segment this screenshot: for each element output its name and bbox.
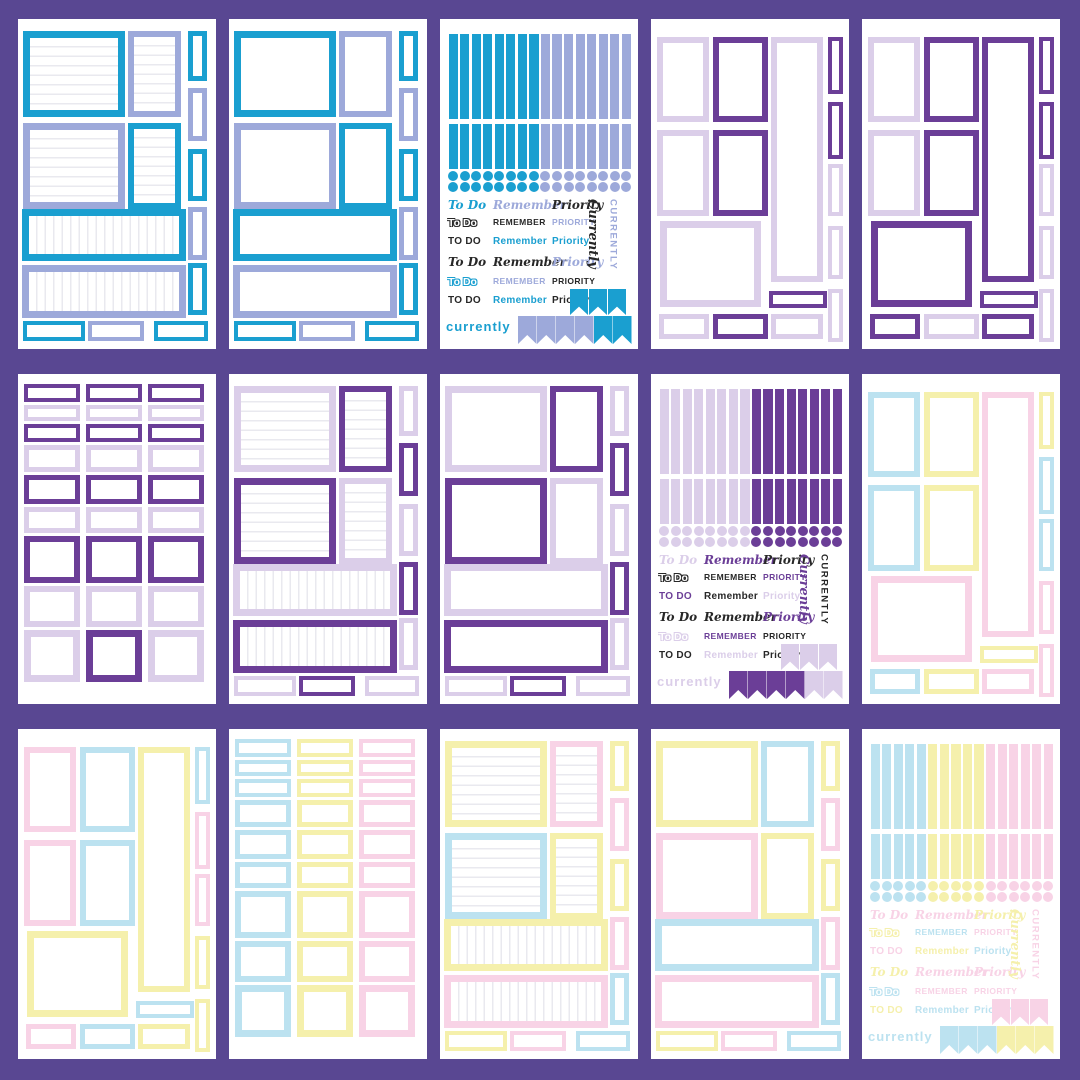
word-sticker-remember: Remember [915, 987, 968, 996]
box-sticker [297, 862, 353, 888]
box-sticker-inner [239, 743, 287, 753]
box-sticker-inner [615, 803, 624, 846]
washi-strip-sticker [963, 744, 972, 829]
box-sticker [445, 833, 547, 919]
box-sticker [610, 741, 629, 791]
dot-sticker [763, 526, 773, 536]
box-sticker [86, 384, 142, 402]
dot-sticker [682, 526, 692, 536]
box-sticker [22, 265, 186, 318]
washi-strip-sticker [472, 34, 481, 119]
box-sticker [359, 941, 415, 982]
box-sticker [655, 975, 819, 1028]
box-sticker-inner [725, 1035, 773, 1047]
box-sticker [188, 31, 207, 81]
box-sticker-inner [303, 947, 347, 976]
box-sticker-inner [242, 992, 284, 1030]
box-sticker [828, 289, 843, 342]
box-sticker [235, 891, 291, 938]
washi-strip-sticker [1044, 744, 1053, 829]
box-sticker-inner [776, 319, 818, 334]
dot-sticker [1032, 892, 1042, 902]
sticker-sheet-collage: To DoRememberPriorityTo DoRememberPriori… [0, 0, 1080, 1080]
dot-sticker [517, 182, 527, 192]
dot-sticker [552, 171, 562, 181]
box-sticker [148, 445, 204, 472]
box-sticker-inner [199, 816, 206, 865]
dot-sticker [494, 182, 504, 192]
washi-strip-sticker [587, 124, 596, 169]
box-sticker-inner [30, 592, 74, 621]
box-sticker [610, 504, 629, 556]
box-sticker [787, 1031, 841, 1051]
box-sticker [444, 919, 608, 971]
dot-sticker [751, 537, 761, 547]
pennant-sticker [1030, 999, 1048, 1025]
washi-strip-sticker [798, 479, 807, 524]
box-sticker [234, 321, 296, 341]
sticker-sheet-13 [440, 729, 638, 1059]
pennant-sticker [1011, 999, 1029, 1025]
word-sticker-to-do: TO DO [870, 1006, 903, 1016]
dot-sticker [939, 892, 949, 902]
box-sticker-inner [719, 136, 762, 210]
box-sticker [80, 747, 135, 832]
dot-sticker [893, 892, 903, 902]
box-sticker [1039, 37, 1054, 94]
box-sticker-inner [369, 325, 415, 337]
box-sticker-inner [404, 509, 413, 551]
dot-sticker [552, 182, 562, 192]
box-sticker-inner [987, 319, 1029, 334]
dot-sticker [740, 526, 750, 536]
washi-strip-sticker [599, 124, 608, 169]
word-sticker-remember: Remember [704, 651, 758, 661]
box-sticker [148, 424, 204, 442]
box-sticker-inner [878, 228, 965, 300]
box-sticker-inner [241, 947, 285, 976]
washi-strip-sticker [1032, 744, 1041, 829]
dot-sticker [540, 171, 550, 181]
box-sticker [1039, 102, 1054, 159]
dot-sticker [1009, 892, 1019, 902]
box-sticker [510, 1031, 566, 1051]
box-sticker [297, 739, 353, 757]
dot-sticker [882, 881, 892, 891]
dot-sticker [809, 526, 819, 536]
washi-strip-sticker [717, 479, 726, 524]
box-sticker-inner [85, 1029, 130, 1044]
washi-strip-sticker [694, 479, 703, 524]
dot-sticker [821, 537, 831, 547]
dot-sticker [471, 182, 481, 192]
washi-strip-sticker [495, 124, 504, 169]
box-sticker [550, 741, 603, 827]
box-sticker [23, 123, 125, 209]
box-sticker [721, 1031, 777, 1051]
box-sticker [23, 321, 85, 341]
washi-strip-sticker [882, 834, 891, 879]
box-sticker-inner [615, 509, 624, 551]
box-sticker-inner [987, 674, 1029, 689]
dot-sticker [916, 892, 926, 902]
box-sticker [26, 1024, 76, 1049]
box-sticker-inner [773, 295, 823, 304]
dot-sticker [728, 526, 738, 536]
word-sticker-currently-vertical: CURRENTLY [819, 554, 829, 654]
box-sticker [871, 221, 972, 307]
box-sticker [1039, 392, 1054, 449]
box-sticker-inner [514, 1035, 562, 1047]
box-sticker [399, 618, 418, 670]
washi-strip-sticker [871, 834, 880, 879]
box-sticker [982, 37, 1034, 282]
word-sticker-currently-vertical: CURRENTLY [608, 199, 618, 299]
box-sticker [297, 941, 353, 982]
box-sticker [234, 386, 336, 472]
box-sticker-inner [134, 37, 175, 111]
dot-sticker [1043, 881, 1053, 891]
dot-sticker [763, 537, 773, 547]
washi-strip-sticker [483, 124, 492, 169]
washi-strip-sticker [683, 479, 692, 524]
dot-sticker [916, 881, 926, 891]
box-sticker [148, 475, 204, 504]
pennant-sticker [824, 671, 843, 699]
washi-strip-sticker [1009, 744, 1018, 829]
box-sticker-inner [153, 450, 199, 467]
box-sticker-inner [832, 106, 839, 155]
box-sticker [656, 1031, 718, 1051]
washi-strip-sticker [683, 389, 692, 474]
box-sticker [235, 941, 291, 982]
word-sticker-currently: currently [868, 1030, 933, 1043]
sticker-sheet-7 [229, 374, 427, 704]
sticker-sheet-2 [229, 19, 427, 349]
box-sticker-inner [29, 450, 75, 467]
box-sticker-inner [301, 764, 349, 772]
box-sticker-inner [826, 978, 835, 1020]
box-sticker [188, 88, 207, 141]
pennant-sticker [978, 1026, 997, 1054]
box-sticker-inner [238, 325, 292, 337]
box-sticker [128, 123, 181, 209]
box-sticker-inner [90, 409, 138, 417]
pennant-sticker [767, 671, 786, 699]
box-sticker [136, 1001, 194, 1018]
dot-sticker [1009, 881, 1019, 891]
box-sticker-inner [153, 512, 199, 528]
box-sticker [924, 130, 979, 216]
box-sticker [359, 760, 415, 776]
dot-sticker [974, 881, 984, 891]
box-sticker [713, 130, 768, 216]
box-sticker-inner [303, 897, 347, 932]
dot-sticker [587, 171, 597, 181]
washi-strip-sticker [706, 479, 715, 524]
box-sticker [659, 314, 709, 339]
box-sticker-inner [366, 992, 408, 1030]
box-sticker-inner [404, 154, 413, 196]
pennant-sticker [748, 671, 767, 699]
box-sticker-inner [615, 391, 624, 431]
box-sticker [660, 221, 761, 307]
pennant-sticker [729, 671, 748, 699]
box-sticker [445, 741, 547, 827]
box-sticker [24, 586, 80, 627]
word-sticker-to-do: To Do [870, 987, 899, 998]
box-sticker [828, 226, 843, 279]
washi-strip-sticker [660, 479, 669, 524]
box-sticker [771, 37, 823, 282]
washi-strip-sticker [940, 744, 949, 829]
box-sticker [235, 760, 291, 776]
dot-sticker [506, 182, 516, 192]
box-sticker [138, 747, 190, 992]
word-sticker-remember: Remember [493, 218, 546, 227]
box-sticker-inner [718, 319, 763, 334]
dot-sticker [610, 182, 620, 192]
dot-sticker [1032, 881, 1042, 891]
washi-strip-sticker [998, 834, 1007, 879]
dot-sticker [448, 182, 458, 192]
dot-sticker [882, 892, 892, 902]
box-sticker-inner [1043, 523, 1050, 567]
dot-sticker [598, 171, 608, 181]
box-sticker [924, 392, 979, 477]
word-sticker-currently-vertical: CURRENTLY [1030, 909, 1040, 1009]
box-sticker-inner [615, 864, 624, 906]
washi-strip-sticker [729, 479, 738, 524]
box-sticker [86, 424, 142, 442]
washi-strip-sticker [986, 744, 995, 829]
box-sticker-inner [452, 485, 540, 557]
box-sticker [24, 507, 80, 533]
box-sticker-inner [158, 325, 204, 337]
box-sticker-inner [874, 398, 914, 471]
sticker-sheet-10 [862, 374, 1060, 704]
box-sticker-inner [93, 637, 135, 675]
box-sticker [86, 630, 142, 682]
box-sticker [359, 800, 415, 827]
washi-strip-sticker [541, 124, 550, 169]
box-sticker [445, 386, 547, 472]
word-sticker-remember: Remember [915, 947, 969, 957]
box-sticker [235, 862, 291, 888]
box-sticker [713, 37, 768, 122]
pennant-sticker [805, 671, 824, 699]
box-sticker-inner [1043, 168, 1050, 212]
box-sticker [235, 739, 291, 757]
box-sticker-inner [143, 1029, 185, 1044]
dot-sticker [694, 537, 704, 547]
box-sticker [870, 314, 920, 339]
box-sticker-inner [449, 1035, 503, 1047]
word-sticker-to-do: To Do [659, 611, 697, 623]
box-sticker [23, 31, 125, 117]
box-sticker-inner [404, 268, 413, 310]
box-sticker-inner [30, 130, 118, 202]
box-sticker-inner [451, 926, 601, 964]
box-sticker [980, 646, 1038, 663]
washi-strip-sticker [449, 124, 458, 169]
box-sticker [86, 536, 142, 583]
box-sticker [299, 321, 355, 341]
word-sticker-priority: Priority [974, 947, 1011, 957]
box-sticker [80, 840, 135, 926]
washi-strip-sticker [1044, 834, 1053, 879]
dot-sticker [671, 526, 681, 536]
box-sticker-inner [984, 295, 1034, 304]
dot-sticker [928, 892, 938, 902]
box-sticker [148, 507, 204, 533]
box-sticker-inner [663, 840, 751, 912]
word-sticker-to-do: TO DO [659, 651, 692, 661]
box-sticker [821, 798, 840, 851]
box-sticker [148, 405, 204, 421]
box-sticker-inner [1043, 461, 1050, 510]
washi-strip-sticker [974, 744, 983, 829]
box-sticker-inner [193, 268, 202, 310]
pennant-sticker [556, 316, 575, 344]
pennant-sticker [992, 999, 1010, 1025]
box-sticker-inner [556, 392, 597, 466]
pennant-sticker [819, 644, 837, 670]
dot-sticker [471, 171, 481, 181]
box-sticker-inner [449, 680, 503, 692]
dot-sticker [832, 537, 842, 547]
box-sticker-inner [27, 325, 81, 337]
word-sticker-to-do: To Do [448, 199, 486, 211]
box-sticker [365, 676, 419, 696]
washi-strip-sticker [974, 834, 983, 879]
box-sticker-inner [240, 571, 390, 609]
box-sticker [24, 630, 80, 682]
box-sticker [868, 37, 920, 122]
box-sticker-inner [929, 319, 974, 334]
dot-sticker [621, 171, 631, 181]
box-sticker [148, 384, 204, 402]
washi-strip-sticker [518, 124, 527, 169]
dot-sticker [529, 171, 539, 181]
box-sticker-inner [91, 480, 137, 499]
washi-strip-sticker [833, 389, 842, 474]
box-sticker [761, 833, 814, 919]
dot-sticker [962, 892, 972, 902]
box-sticker [359, 779, 415, 797]
washi-strip-sticker [821, 389, 830, 474]
word-sticker-remember: Remember [493, 277, 546, 286]
pennant-sticker [959, 1026, 978, 1054]
washi-strip-sticker [506, 124, 515, 169]
box-sticker-inner [363, 764, 411, 772]
box-sticker [610, 618, 629, 670]
box-sticker [297, 800, 353, 827]
box-sticker [359, 862, 415, 888]
box-sticker-inner [556, 839, 597, 913]
word-sticker-to-do: TO DO [448, 237, 481, 247]
pennant-sticker [1035, 1026, 1054, 1054]
dot-sticker [905, 881, 915, 891]
box-sticker-inner [364, 835, 410, 854]
box-sticker [828, 102, 843, 159]
box-sticker [195, 999, 210, 1052]
box-sticker [713, 314, 768, 339]
washi-strip-sticker [763, 389, 772, 474]
box-sticker-inner [241, 393, 329, 465]
word-sticker-to-do: TO DO [448, 296, 481, 306]
box-sticker-inner [667, 228, 754, 300]
box-sticker-inner [930, 491, 973, 565]
box-sticker-inner [153, 480, 199, 499]
box-sticker-inner [404, 623, 413, 665]
box-sticker [924, 314, 979, 339]
sticker-sheet-15: To DoRememberPriorityTo DoRememberPriori… [862, 729, 1060, 1059]
sticker-sheet-12 [229, 729, 427, 1059]
washi-strip-sticker [894, 744, 903, 829]
dot-sticker [460, 182, 470, 192]
washi-strip-sticker [552, 34, 561, 119]
pennant-sticker [613, 316, 632, 344]
box-sticker [1039, 581, 1054, 634]
washi-strip-sticker [622, 124, 631, 169]
box-sticker [24, 747, 76, 832]
dot-sticker [1020, 892, 1030, 902]
word-sticker-remember: Remember [915, 928, 968, 937]
box-sticker [27, 931, 128, 1017]
box-sticker [576, 1031, 630, 1051]
box-sticker-inner [91, 512, 137, 528]
word-sticker-to-do: To Do [659, 554, 697, 566]
dot-sticker [575, 171, 585, 181]
box-sticker-inner [826, 922, 835, 965]
washi-strip-sticker [787, 389, 796, 474]
dot-sticker [821, 526, 831, 536]
box-sticker-inner [92, 325, 140, 337]
word-sticker-to-do: To Do [448, 218, 477, 229]
box-sticker [399, 88, 418, 141]
box-sticker-inner [369, 680, 415, 692]
box-sticker-inner [514, 680, 562, 692]
box-sticker-inner [451, 571, 601, 609]
dot-sticker [598, 182, 608, 192]
box-sticker [138, 1024, 190, 1049]
box-sticker-inner [31, 637, 73, 675]
washi-strip-sticker [740, 479, 749, 524]
box-sticker-inner [28, 388, 76, 398]
washi-strip-sticker [1009, 834, 1018, 879]
box-sticker [188, 263, 207, 315]
box-sticker-inner [345, 37, 386, 111]
washi-strip-sticker [810, 479, 819, 524]
box-sticker-inner [86, 753, 129, 826]
dot-sticker [1020, 881, 1030, 891]
box-sticker [445, 1031, 507, 1051]
box-sticker-inner [663, 748, 751, 820]
box-sticker-inner [363, 783, 411, 793]
sticker-sheet-9: To DoRememberPriorityTo DoRememberPriori… [651, 374, 849, 704]
box-sticker-inner [304, 992, 346, 1030]
box-sticker-inner [826, 746, 835, 786]
box-sticker [610, 859, 629, 911]
box-sticker-inner [152, 409, 200, 417]
box-sticker [339, 386, 392, 472]
box-sticker [821, 917, 840, 970]
box-sticker [445, 478, 547, 564]
dot-sticker [740, 537, 750, 547]
box-sticker [233, 564, 397, 616]
box-sticker [299, 676, 355, 696]
